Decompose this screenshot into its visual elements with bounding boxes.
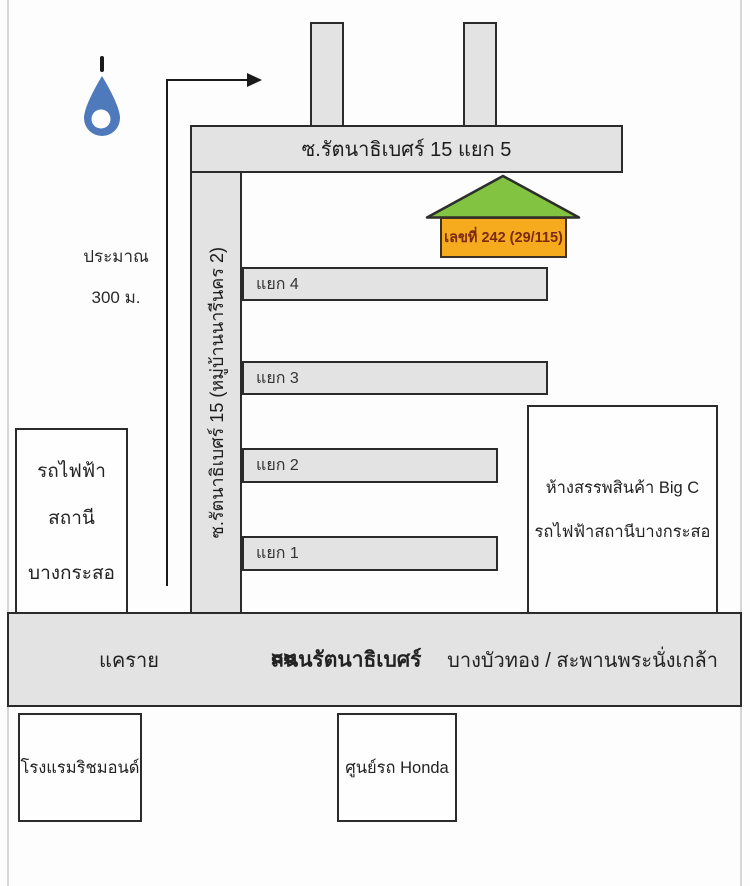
mrt-station-line2: สถานี bbox=[48, 495, 95, 542]
bigc-box: ห้างสรรพสินค้า Big C รถไฟฟ้าสถานีบางกระส… bbox=[527, 405, 718, 614]
location-pin-icon bbox=[80, 53, 128, 141]
road-yaek-1: แยก 1 bbox=[242, 536, 498, 571]
mrt-station-box: รถไฟฟ้า สถานี บางกระสอ bbox=[15, 428, 128, 614]
richmond-hotel-box: โรงแรมริชมอนด์ bbox=[18, 713, 142, 822]
destination-house: เลขที่ 242 (29/115) bbox=[440, 217, 567, 258]
road-yaek-2: แยก 2 bbox=[242, 448, 498, 483]
distance-note: ประมาณ 300 ม. bbox=[62, 236, 170, 318]
image-frame-left bbox=[7, 0, 9, 886]
road-soi15-yaek5-label: ซ.รัตนาธิเบศร์ 15 แยก 5 bbox=[302, 133, 512, 165]
house-roof-icon bbox=[424, 174, 582, 220]
bigc-line1: ห้างสรรพสินค้า Big C bbox=[546, 466, 699, 510]
road-rattanathibet-main: แคราย << ถนนรัตนาธิเบศร์ >> บางบัวทอง / … bbox=[7, 612, 742, 707]
main-road-arrow-right: >> bbox=[271, 648, 296, 672]
destination-house-label: เลขที่ 242 (29/115) bbox=[444, 226, 563, 249]
bigc-line2: รถไฟฟ้าสถานีบางกระสอ bbox=[535, 510, 711, 554]
mrt-station-line3: บางกระสอ bbox=[28, 550, 115, 597]
honda-center-box: ศูนย์รถ Honda bbox=[337, 713, 457, 822]
distance-note-line2: 300 ม. bbox=[62, 277, 170, 318]
stub-road-right bbox=[463, 22, 497, 128]
main-road-dest-right: บางบัวทอง / สะพานพระนั่งเกล้า bbox=[447, 644, 718, 676]
stub-road-left bbox=[310, 22, 344, 128]
road-yaek-4: แยก 4 bbox=[242, 267, 548, 301]
mrt-station-line1: รถไฟฟ้า bbox=[37, 448, 106, 495]
main-road-dest-left: แคราย bbox=[99, 644, 159, 676]
route-arrow bbox=[156, 68, 272, 594]
distance-note-line1: ประมาณ bbox=[62, 236, 170, 277]
image-frame-right bbox=[740, 0, 742, 886]
road-yaek-3: แยก 3 bbox=[242, 361, 548, 395]
richmond-hotel-label: โรงแรมริชมอนด์ bbox=[21, 755, 140, 781]
honda-center-label: ศูนย์รถ Honda bbox=[345, 755, 448, 781]
